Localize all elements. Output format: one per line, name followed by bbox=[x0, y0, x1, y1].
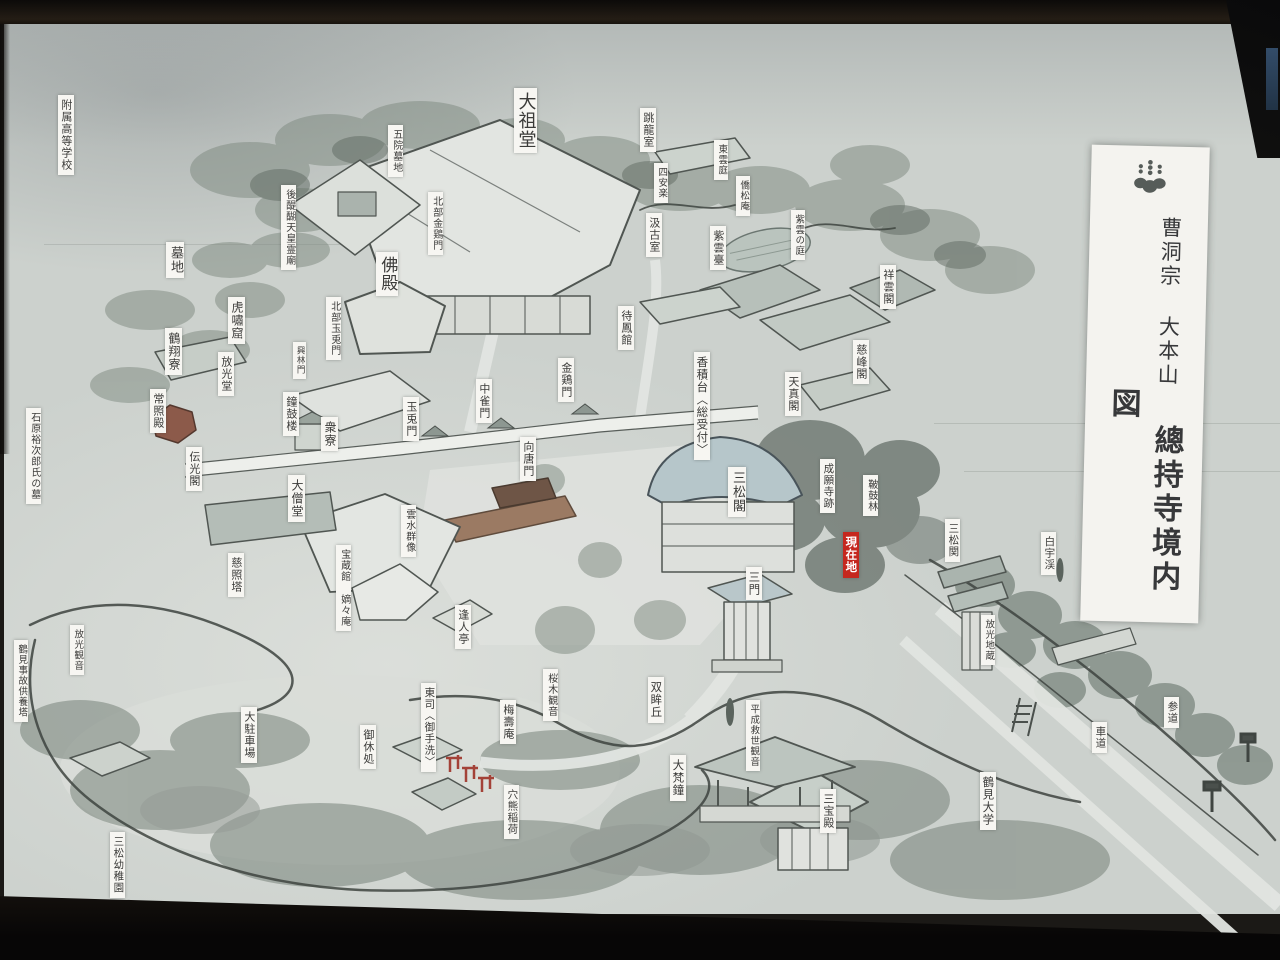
map-label-josho-den: 常照殿 bbox=[150, 389, 166, 433]
map-label-tenshin-kaku: 天真閣 bbox=[785, 372, 801, 416]
map-label-jisho-to: 慈照塔 bbox=[228, 553, 244, 597]
map-label-sansho-yochien: 三松幼稚園 bbox=[110, 832, 125, 898]
map-label-kinkei-mon: 金鶏門 bbox=[558, 358, 574, 402]
map-label-daisodo: 大祖堂 bbox=[514, 88, 537, 153]
map-label-hoko-kannon: 放光観音 bbox=[70, 625, 84, 675]
map-label-gyokuto-mon: 玉兎門 bbox=[403, 397, 419, 441]
map-label-san-mon: 三門 bbox=[746, 567, 762, 600]
map-label-sansho-kaku: 三松閣 bbox=[728, 467, 746, 517]
title-text: 曹洞宗 大本山 總持寺境内図 bbox=[1096, 209, 1194, 601]
map-label-hoko-jizo: 放光地蔵 bbox=[981, 615, 995, 665]
map-label-hokubu-gyokuto-mon: 北部玉兎門 bbox=[326, 297, 341, 360]
signboard-photo: { "title_block": { "line1": "曹洞宗 大本山", "… bbox=[0, 0, 1280, 960]
map-label-shiun-no-niwa: 紫雲の庭 bbox=[791, 210, 805, 260]
map-label-genzaichi: 現在地 bbox=[843, 532, 859, 578]
map-label-kakusho-ryo: 鶴翔寮 bbox=[165, 328, 182, 375]
title-board: 曹洞宗 大本山 總持寺境内図 bbox=[1080, 145, 1210, 624]
map-label-joganji-ato: 成願寺跡 bbox=[820, 459, 835, 513]
map-label-koshakudai-uketsuke: 香積台〈総受付〉 bbox=[694, 352, 710, 460]
map-label-tosu-otearai: 東司〈御手洗〉 bbox=[421, 683, 436, 772]
map-label-sansho-seki: 三松関 bbox=[945, 519, 960, 562]
map-label-sobo-kyu: 双眸丘 bbox=[648, 677, 664, 723]
wooden-beam-top bbox=[0, 0, 1280, 24]
map-label-jiho-kaku: 慈峰閣 bbox=[853, 340, 869, 384]
map-label-shiundai: 紫雲臺 bbox=[710, 226, 726, 270]
map-label-taiho-kan: 待鳳館 bbox=[618, 306, 634, 350]
map-label-oyasumi-dokoro: 御休処 bbox=[360, 725, 376, 769]
title-main-line: 總持寺境内図 bbox=[1105, 387, 1184, 595]
map-label-chujaku-mon: 中雀門 bbox=[476, 379, 492, 423]
map-label-fuzoku-koko: 附属高等学校 bbox=[58, 95, 74, 175]
map-label-hoko-do: 放光堂 bbox=[218, 352, 234, 396]
map-label-shinonome-tei: 東雲庭 bbox=[714, 140, 728, 180]
map-label-hojin-tei: 逢人亭 bbox=[455, 605, 471, 649]
map-label-shuryo: 衆寮 bbox=[321, 417, 338, 451]
title-sect-line: 曹洞宗 大本山 bbox=[1155, 216, 1183, 388]
map-label-denko-kaku: 伝光閣 bbox=[186, 447, 202, 491]
sky-glint bbox=[1266, 48, 1278, 110]
map-label-butsuden: 佛殿 bbox=[376, 252, 398, 296]
map-label-mukara-mon: 向唐門 bbox=[520, 437, 536, 481]
map-label-korin-mon: 興林門 bbox=[293, 342, 306, 379]
paulownia-crest-icon bbox=[1129, 158, 1172, 201]
map-label-hiko-rin: 鞁鼓林 bbox=[863, 475, 878, 516]
map-label-heisei-guze-kannon: 平成救世観音 bbox=[746, 700, 760, 771]
map-label-choryu-shitsu: 跳龍室 bbox=[640, 108, 656, 152]
map-label-daibon-sho: 大梵鐘 bbox=[670, 755, 686, 801]
map-label-anaguma-inari: 穴熊稲荷 bbox=[504, 785, 519, 839]
map-label-tsurumi-daigaku: 鶴見大学 bbox=[980, 772, 996, 830]
map-label-bochi: 墓地 bbox=[166, 242, 184, 278]
map-label-sakuragi-kannon: 桜木観音 bbox=[543, 669, 558, 721]
map-label-godaigo-tenno-reibyo: 後醍醐天皇霊廟 bbox=[281, 185, 296, 270]
map-label-baiju-an: 梅壽庵 bbox=[500, 700, 516, 744]
map-label-sanbo-den: 三宝殿 bbox=[820, 789, 836, 833]
map-label-kyuko-shitsu: 汲古室 bbox=[646, 213, 662, 257]
map-label-dai-chushajo: 大駐車場 bbox=[241, 707, 257, 763]
frame-left-edge bbox=[0, 24, 10, 454]
map-label-tsurumi-jiko-kuyoto: 鶴見事故供養塔 bbox=[14, 640, 28, 722]
map-label-kosho-kutsu: 虎嘯窟 bbox=[228, 297, 245, 344]
map-label-sando: 参道 bbox=[1164, 697, 1179, 728]
map-label-shado: 車道 bbox=[1092, 722, 1107, 753]
map-label-hakuu-kei: 白宇渓 bbox=[1041, 532, 1056, 575]
map-label-hokubu-kinkeimon: 北部金鶏門 bbox=[428, 192, 443, 255]
map-label-goin-bochi: 五院墓地 bbox=[388, 125, 403, 177]
map-label-shianraku: 四安楽 bbox=[654, 163, 668, 203]
map-label-daiso-do: 大僧堂 bbox=[288, 475, 305, 522]
map-label-hozokan-chakuchakuan: 宝蔵館 嫡々庵 bbox=[336, 545, 351, 631]
map-label-ishihara-yujiro-haka: 石原裕次郎氏の墓 bbox=[26, 408, 41, 504]
map-label-kyosho-an: 僑松庵 bbox=[736, 176, 750, 216]
map-label-shoun-kaku: 祥雲閣 bbox=[880, 265, 896, 309]
map-label-unsui-gunzo: 雲水群像 bbox=[401, 505, 416, 557]
map-label-shoko-ro: 鐘鼓楼 bbox=[283, 392, 299, 436]
